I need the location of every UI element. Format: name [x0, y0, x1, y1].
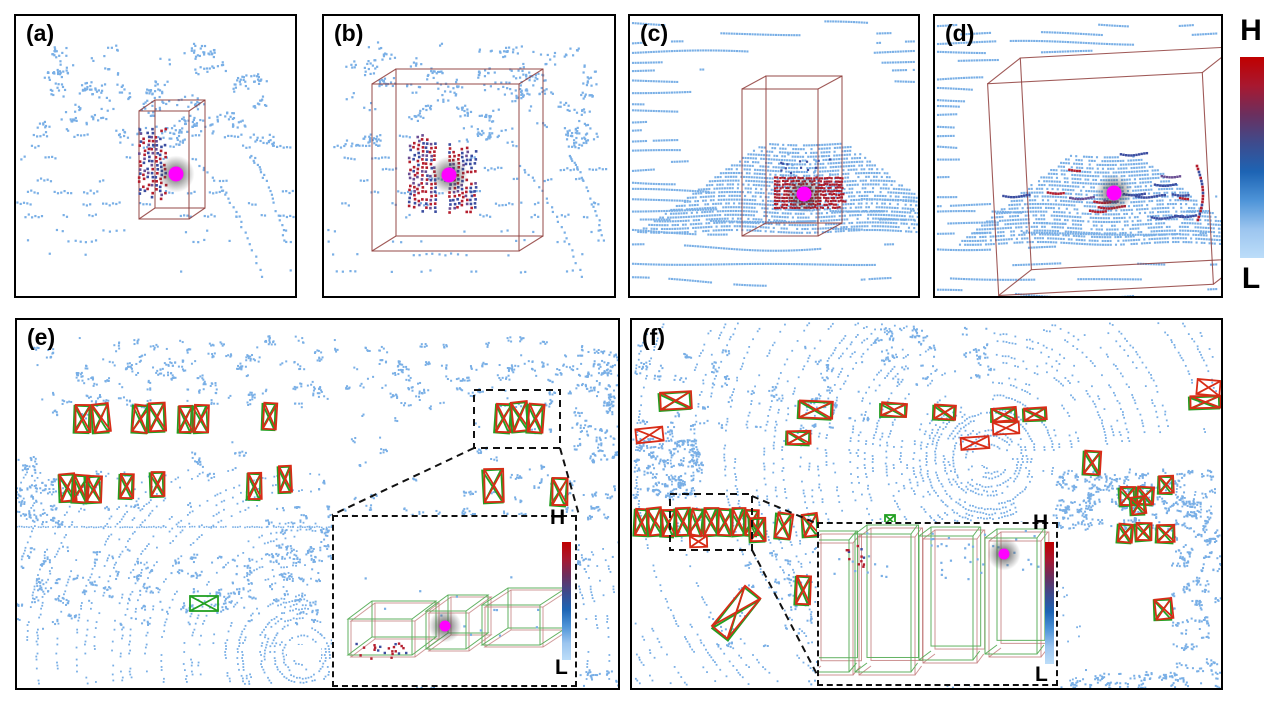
panel-e-inset-canvas	[334, 517, 575, 685]
inset-e-colorbar	[562, 542, 571, 660]
panel-e: (e) H L	[15, 318, 620, 690]
panel-e-label: (e)	[27, 324, 55, 351]
panel-f-label: (f)	[642, 324, 665, 351]
inset-f-colorbar	[1045, 542, 1054, 664]
panel-b-label: (b)	[334, 20, 363, 47]
panel-f-zoom-inset: H L	[817, 522, 1058, 686]
panel-c: (c)	[628, 14, 920, 298]
colorbar-high-label: H	[1238, 14, 1264, 48]
panel-d: (d)	[933, 14, 1223, 298]
inset-f-low-label: L	[1035, 664, 1048, 685]
panel-b-pointcloud-canvas	[324, 16, 614, 296]
panel-a: (a)	[14, 14, 297, 298]
inset-e-high-label: H	[550, 507, 565, 528]
colorbar-gradient	[1240, 57, 1264, 258]
inset-f-high-label: H	[1033, 512, 1048, 533]
panel-f-inset-canvas	[819, 524, 1056, 684]
panel-c-label: (c)	[640, 20, 668, 47]
figure-root: (a) (b) (c) (d) H L (e) H L (f) H L	[0, 0, 1269, 704]
inset-e-low-label: L	[555, 657, 568, 678]
panel-c-pointcloud-canvas	[630, 16, 918, 296]
panel-d-pointcloud-canvas	[935, 16, 1221, 296]
panel-d-label: (d)	[945, 20, 974, 47]
panel-b: (b)	[322, 14, 616, 298]
panel-e-zoom-inset: H L	[332, 515, 577, 687]
panel-f: (f) H L	[630, 318, 1223, 690]
panel-a-pointcloud-canvas	[16, 16, 295, 296]
panel-a-label: (a)	[26, 20, 54, 47]
colorbar-low-label: L	[1238, 262, 1264, 296]
